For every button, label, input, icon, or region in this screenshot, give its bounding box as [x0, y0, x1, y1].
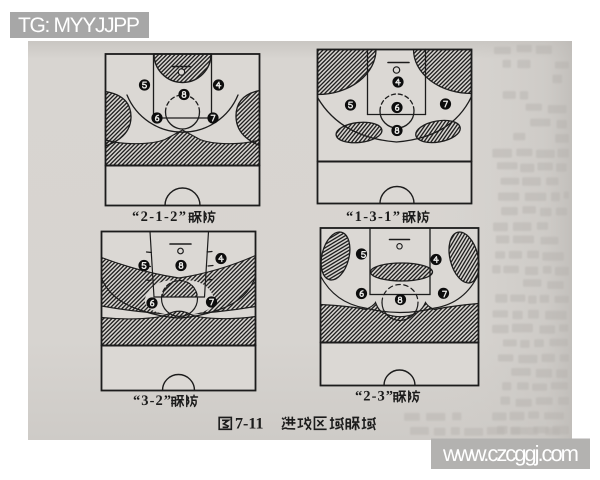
svg-text:www.czcggj.com: www.czcggj.com	[442, 441, 579, 466]
svg-text:“3-2”: “3-2”	[133, 393, 171, 409]
svg-text:“1-3-1”: “1-3-1”	[346, 209, 400, 225]
svg-text:7-11: 7-11	[235, 416, 263, 433]
svg-text:“2-3”: “2-3”	[355, 389, 393, 405]
svg-text:TG: MYYJJPP: TG: MYYJJPP	[18, 14, 140, 37]
svg-text:“2-1-2”: “2-1-2”	[132, 209, 186, 225]
